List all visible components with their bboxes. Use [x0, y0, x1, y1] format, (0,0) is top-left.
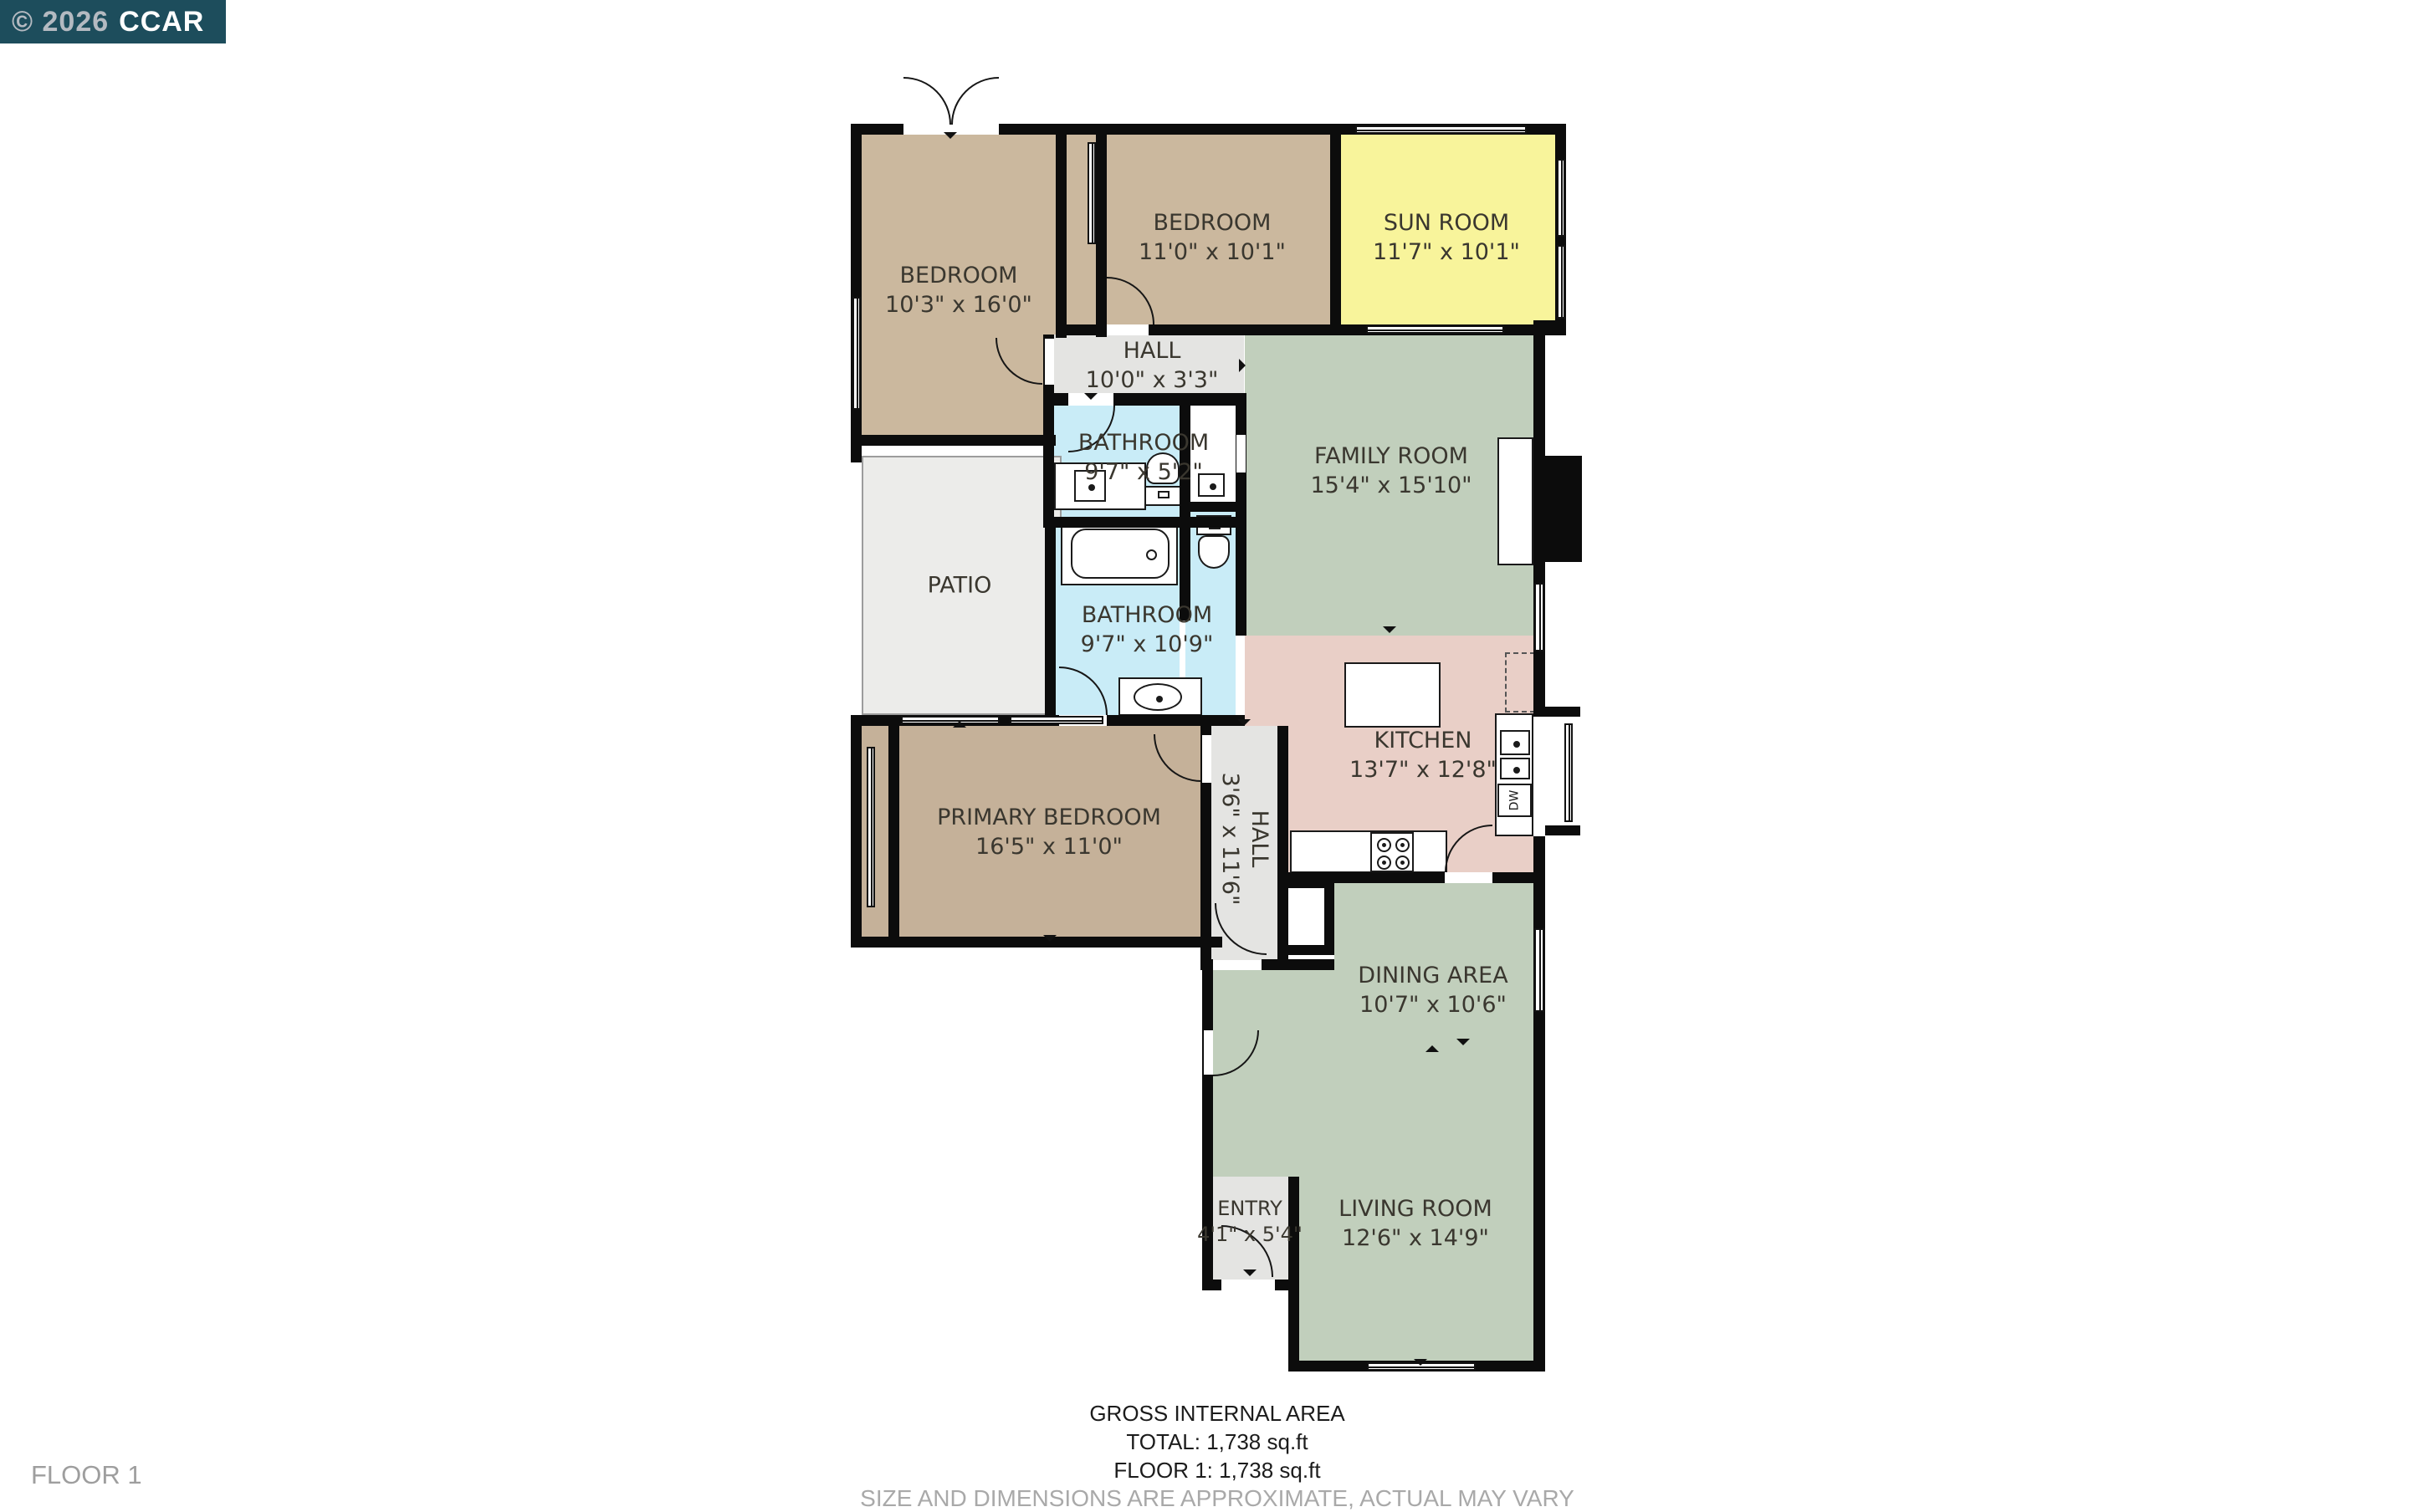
window-pane — [1357, 130, 1525, 131]
window-icon — [852, 297, 861, 410]
wall — [1545, 707, 1580, 717]
door-opening — [1445, 872, 1492, 883]
room-name: DINING AREA — [1358, 961, 1507, 990]
room-label-sun-room: SUN ROOM11'7" x 10'1" — [1373, 208, 1520, 267]
window-icon — [867, 747, 875, 907]
burner-center — [1400, 861, 1405, 865]
window-pane — [1561, 247, 1563, 317]
room-name: LIVING ROOM — [1338, 1194, 1492, 1223]
burner-icon — [1377, 856, 1391, 870]
window-pane — [1092, 144, 1093, 243]
toilet-bowl — [1198, 535, 1230, 569]
wall — [1278, 945, 1334, 955]
sink-icon — [1134, 683, 1182, 711]
floorplan-canvas: DWBEDROOM10'3" x 16'0"BEDROOM11'0" x 10'… — [0, 0, 2421, 1512]
window-pane — [1539, 930, 1541, 1010]
room-name: BATHROOM — [1081, 600, 1214, 630]
room-closet-lower — [1288, 888, 1324, 945]
window-icon — [1355, 125, 1527, 134]
total-area: TOTAL: 1,738 sq.ft — [860, 1428, 1574, 1456]
wall — [1056, 135, 1067, 338]
window-icon — [1088, 142, 1096, 244]
room-name: FAMILY ROOM — [1310, 442, 1472, 471]
burner-center — [1382, 843, 1386, 847]
room-name: HALL — [1086, 336, 1219, 365]
room-dimensions: 12'6" x 14'9" — [1338, 1223, 1492, 1253]
window-pane — [903, 720, 998, 722]
room-dimensions: 11'7" x 10'1" — [1373, 238, 1520, 267]
dishwasher-icon: DW — [1497, 784, 1532, 817]
room-name: HALL — [1245, 773, 1274, 906]
room-dimensions: 9'7" x 5'2" — [1078, 457, 1209, 487]
room-name: SUN ROOM — [1373, 208, 1520, 238]
direction-arrow-icon — [944, 132, 957, 146]
direction-arrow-icon — [1043, 935, 1057, 948]
wall — [851, 715, 862, 948]
room-name: BATHROOM — [1078, 428, 1209, 457]
bathtub-icon — [1061, 520, 1178, 585]
window-icon — [1564, 723, 1573, 822]
room-dimensions: 3'6" x 11'6" — [1216, 773, 1245, 906]
gross-area-title: GROSS INTERNAL AREA — [860, 1399, 1574, 1428]
window-icon — [1557, 159, 1565, 237]
wall — [1185, 502, 1236, 512]
window-pane — [1011, 720, 1102, 722]
room-label-hall-lower: HALL3'6" x 11'6" — [1216, 773, 1274, 906]
door-opening — [1107, 324, 1149, 335]
room-dimensions: 13'7" x 12'8" — [1349, 755, 1497, 784]
room-label-entry: ENTRY4'1" x 5'4" — [1197, 1196, 1303, 1248]
wall — [1043, 517, 1236, 528]
sink-icon — [1500, 730, 1530, 755]
door-opening — [1045, 339, 1054, 385]
sink-drain — [1156, 696, 1163, 702]
room-label-living-room: LIVING ROOM12'6" x 14'9" — [1338, 1194, 1492, 1253]
direction-arrow-icon — [1243, 1269, 1257, 1283]
burner-icon — [1395, 856, 1410, 870]
window-icon — [1534, 583, 1544, 651]
window-icon — [1534, 928, 1544, 1012]
room-primary-closet — [862, 726, 888, 937]
window-pane — [857, 299, 858, 408]
brand-name: CCAR — [119, 6, 204, 38]
burner-icon — [1377, 838, 1391, 852]
wall — [1533, 836, 1545, 1372]
room-dimensions: 10'3" x 16'0" — [885, 290, 1032, 319]
window-icon — [901, 716, 1000, 724]
room-label-bathroom-1: BATHROOM9'7" x 5'2" — [1078, 428, 1209, 487]
room-label-primary-bedroom: PRIMARY BEDROOM16'5" x 11'0" — [937, 803, 1161, 861]
direction-arrow-icon — [1084, 393, 1098, 406]
counter-fixture — [1290, 830, 1447, 873]
window-pane — [1569, 725, 1570, 820]
room-label-kitchen: KITCHEN13'7" x 12'8" — [1349, 726, 1497, 784]
wall — [1533, 320, 1566, 332]
door-opening — [1236, 435, 1246, 472]
direction-arrow-icon — [953, 714, 966, 728]
room-name: BEDROOM — [1139, 208, 1286, 238]
burner-center — [1382, 861, 1386, 865]
room-dimensions: 16'5" x 11'0" — [937, 832, 1161, 861]
wall — [1545, 825, 1580, 835]
room-dining-a — [1334, 882, 1533, 970]
wall — [1324, 878, 1334, 955]
room-dimensions: 15'4" x 15'10" — [1310, 471, 1472, 500]
room-name: PRIMARY BEDROOM — [937, 803, 1161, 832]
wall — [851, 124, 862, 462]
room-label-dining-area: DINING AREA10'7" x 10'6" — [1358, 961, 1507, 1019]
wall — [1262, 959, 1334, 970]
door-swing-icon — [903, 77, 951, 125]
kitchen-island-fixture — [1344, 662, 1441, 728]
dishwasher-label: DW — [1508, 790, 1522, 811]
wall — [888, 726, 899, 937]
wall — [1045, 517, 1056, 726]
direction-arrow-icon — [1383, 626, 1396, 640]
wall — [1330, 135, 1341, 335]
room-label-bathroom-2: BATHROOM9'7" x 10'9" — [1081, 600, 1214, 659]
copyright-year: © 2026 — [12, 6, 109, 38]
wall — [1200, 948, 1211, 970]
room-dimensions: 10'0" x 3'3" — [1086, 365, 1219, 395]
room-label-hall-upper: HALL10'0" x 3'3" — [1086, 336, 1219, 395]
window-icon — [1010, 716, 1103, 724]
window-pane — [1539, 585, 1541, 650]
room-label-bedroom-2: BEDROOM11'0" x 10'1" — [1139, 208, 1286, 267]
room-name: ENTRY — [1197, 1196, 1303, 1222]
floor1-area: FLOOR 1: 1,738 sq.ft — [860, 1456, 1574, 1484]
copyright-badge: © 2026 CCAR — [0, 0, 226, 43]
window-pane — [1368, 329, 1502, 331]
stove-icon — [1370, 832, 1414, 872]
window-icon — [1557, 245, 1565, 319]
room-dimensions: 9'7" x 10'9" — [1081, 630, 1214, 659]
bathtub-drain — [1146, 549, 1157, 560]
direction-arrow-icon — [1425, 1039, 1439, 1052]
direction-arrow-icon — [1456, 1039, 1470, 1052]
sink-drain — [1513, 767, 1520, 774]
direction-arrow-icon — [1237, 719, 1251, 733]
burner-icon — [1395, 838, 1410, 852]
direction-arrow-icon — [1414, 1359, 1427, 1372]
room-dimensions: 11'0" x 10'1" — [1139, 238, 1286, 267]
window-pane — [1561, 161, 1563, 235]
room-name: PATIO — [928, 571, 992, 600]
sink-drain — [1210, 483, 1216, 490]
room-label-family-room: FAMILY ROOM15'4" x 15'10" — [1310, 442, 1472, 500]
sink-icon — [1500, 758, 1530, 779]
floor-label: FLOOR 1 — [31, 1460, 142, 1490]
room-label-patio: PATIO — [928, 571, 992, 600]
door-opening — [1204, 1030, 1213, 1075]
room-dimensions: 4'1" x 5'4" — [1197, 1222, 1303, 1248]
area-summary: GROSS INTERNAL AREA TOTAL: 1,738 sq.ft F… — [860, 1399, 1574, 1512]
direction-arrow-icon — [1239, 359, 1252, 372]
room-name: BEDROOM — [885, 261, 1032, 290]
wall — [1096, 135, 1107, 337]
wall — [851, 937, 1222, 948]
sink-drain — [1513, 741, 1520, 748]
room-dimensions: 10'7" x 10'6" — [1358, 990, 1507, 1019]
door-swing-icon — [951, 77, 999, 125]
fireplace-hearth-fixture — [1497, 437, 1533, 565]
toilet-flush — [1158, 491, 1170, 498]
upper-cabinet-outline — [1505, 652, 1535, 713]
room-name: KITCHEN — [1349, 726, 1497, 755]
wall — [1236, 393, 1246, 636]
door-opening — [1202, 735, 1211, 783]
window-icon — [1366, 325, 1504, 334]
wall — [851, 435, 1056, 446]
room-label-bedroom-1: BEDROOM10'3" x 16'0" — [885, 261, 1032, 319]
wall — [1533, 456, 1582, 562]
disclaimer: SIZE AND DIMENSIONS ARE APPROXIMATE, ACT… — [860, 1484, 1574, 1512]
wall — [1288, 1290, 1299, 1372]
wall — [1277, 726, 1288, 970]
burner-center — [1400, 843, 1405, 847]
window-pane — [871, 748, 873, 906]
